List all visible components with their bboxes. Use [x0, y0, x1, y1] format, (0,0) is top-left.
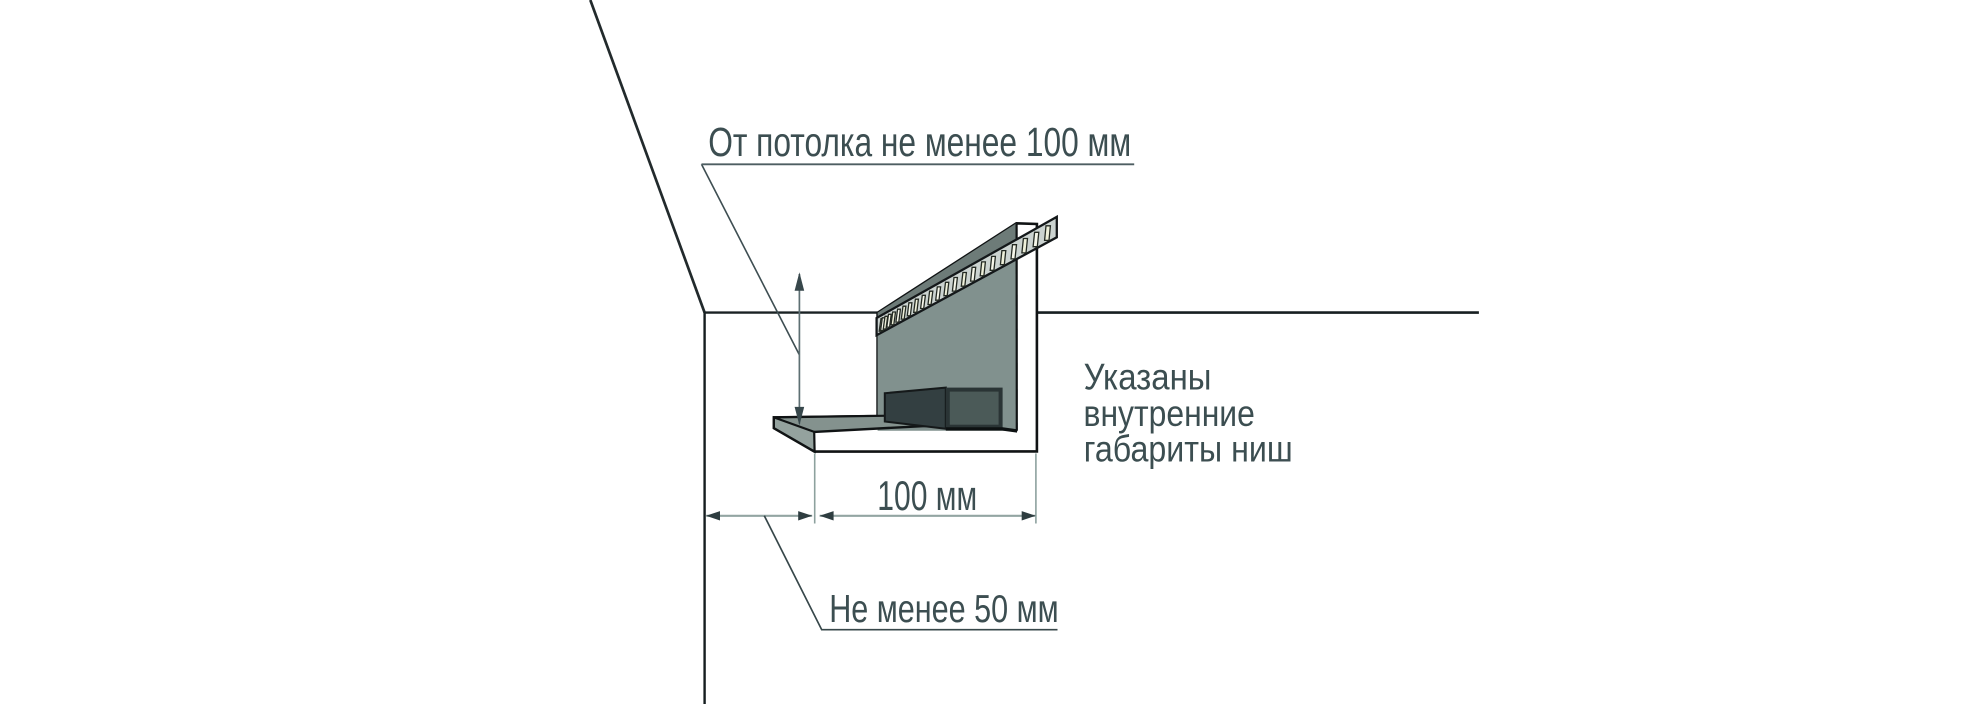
svg-text:100 мм: 100 мм: [877, 472, 977, 519]
svg-text:Не менее 50 мм: Не менее 50 мм: [829, 587, 1058, 630]
svg-text:габариты ниш: габариты ниш: [1084, 428, 1293, 470]
svg-text:Указаны: Указаны: [1084, 356, 1212, 397]
svg-text:От потолка не менее 100 мм: От потолка не менее 100 мм: [708, 119, 1131, 165]
